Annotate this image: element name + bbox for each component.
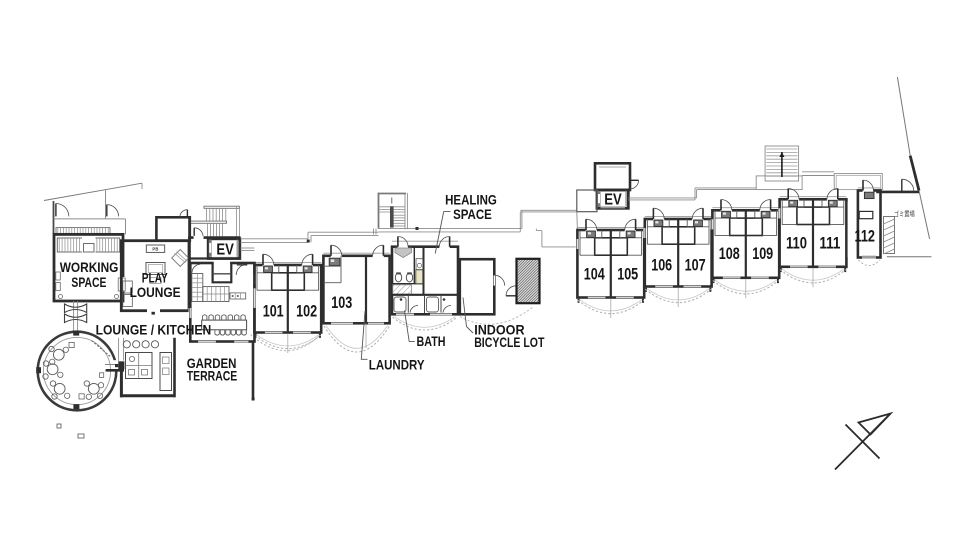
svg-text:HEALING: HEALING — [445, 193, 497, 208]
svg-text:EV: EV — [604, 192, 622, 209]
svg-text:WORKING: WORKING — [60, 260, 119, 275]
svg-text:SPACE: SPACE — [453, 207, 492, 222]
svg-text:LOUNGE / KITCHEN: LOUNGE / KITCHEN — [96, 323, 212, 338]
svg-text:BATH: BATH — [417, 334, 446, 349]
svg-text:TERRACE: TERRACE — [187, 368, 238, 383]
svg-text:109: 109 — [752, 245, 773, 263]
svg-text:105: 105 — [617, 266, 638, 284]
svg-text:107: 107 — [685, 256, 706, 274]
svg-text:110: 110 — [786, 235, 807, 253]
svg-text:EV: EV — [216, 242, 234, 259]
svg-text:PLAY: PLAY — [142, 271, 168, 286]
svg-text:LAUNDRY: LAUNDRY — [369, 358, 425, 373]
svg-text:103: 103 — [331, 294, 352, 312]
svg-text:104: 104 — [584, 266, 605, 284]
svg-text:BICYCLE LOT: BICYCLE LOT — [474, 335, 545, 350]
svg-text:SPACE: SPACE — [71, 275, 106, 290]
svg-text:101: 101 — [263, 303, 284, 321]
svg-text:108: 108 — [719, 245, 740, 263]
svg-text:ゴミ置場: ゴミ置場 — [894, 209, 916, 218]
svg-text:106: 106 — [651, 256, 672, 274]
svg-text:PB: PB — [152, 247, 158, 252]
svg-text:112: 112 — [855, 228, 876, 246]
svg-text:102: 102 — [296, 303, 317, 321]
svg-text:LOUNGE: LOUNGE — [130, 285, 181, 300]
svg-text:111: 111 — [819, 235, 840, 253]
